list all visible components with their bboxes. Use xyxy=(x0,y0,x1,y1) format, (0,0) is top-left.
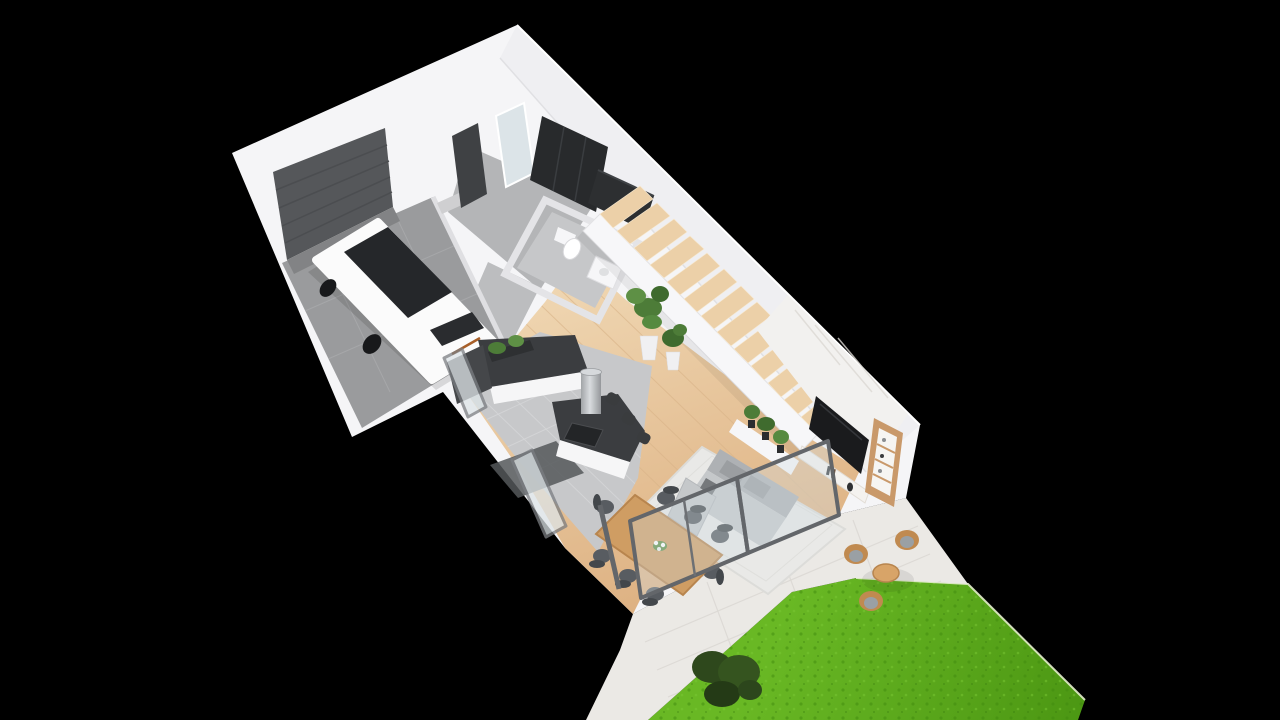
hood-top xyxy=(581,369,602,376)
floorplan-image xyxy=(0,0,1280,720)
outdoor-chair xyxy=(844,544,868,564)
herb-plant-2 xyxy=(508,335,524,347)
cooker-hood xyxy=(581,369,602,415)
scene-svg xyxy=(0,0,1280,720)
outdoor-chair xyxy=(895,530,919,550)
niche-decor-2 xyxy=(880,454,884,458)
outdoor-chair xyxy=(859,591,883,611)
outdoor-table xyxy=(873,564,899,582)
herb-plant-1 xyxy=(488,342,506,354)
hood-body xyxy=(581,372,601,414)
shelf-vase xyxy=(847,483,853,492)
niche-decor-3 xyxy=(878,469,882,473)
niche-decor-1 xyxy=(882,438,886,442)
washbasin-bowl xyxy=(599,268,609,276)
